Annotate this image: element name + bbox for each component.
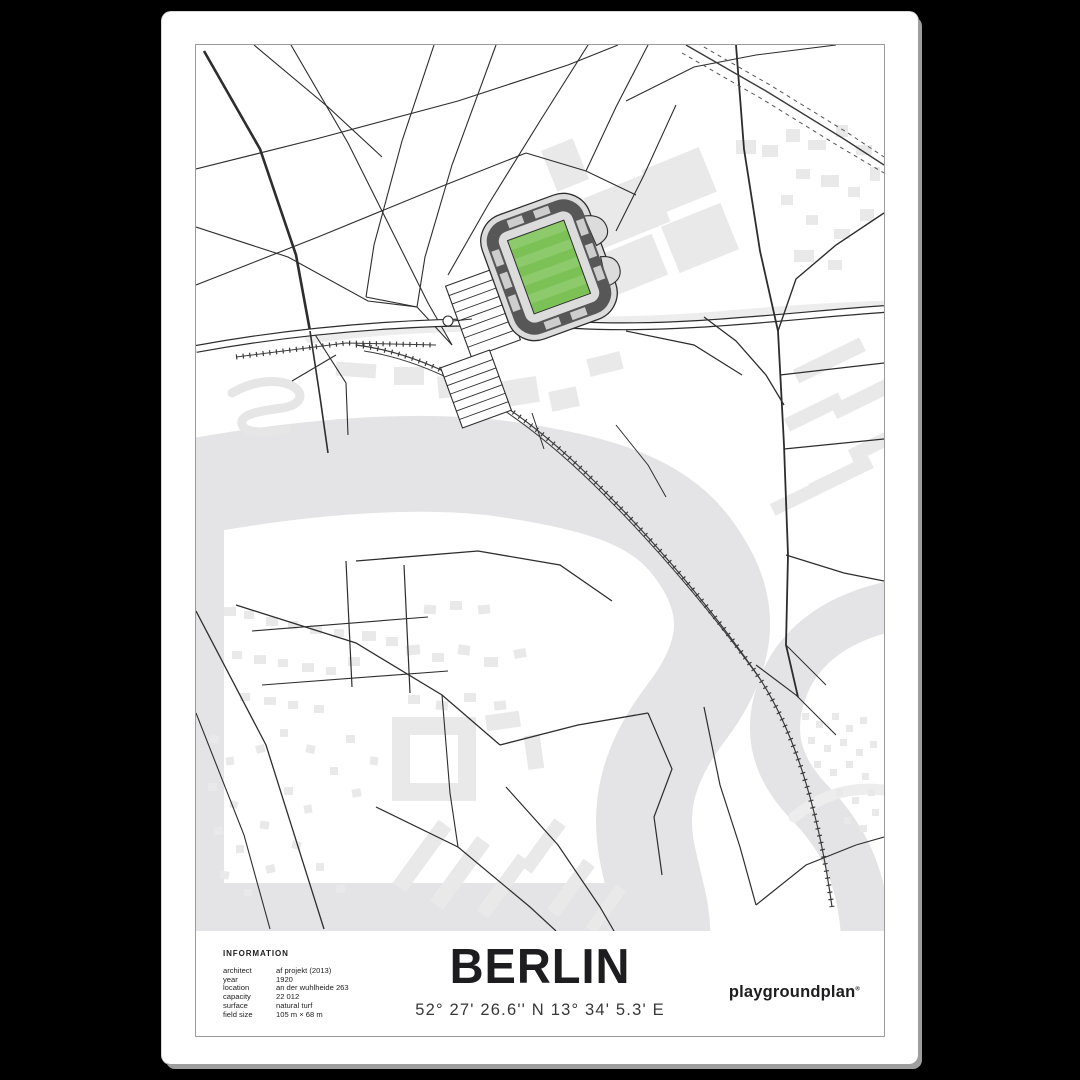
registered-mark: ® — [855, 987, 860, 993]
scene: { "poster": { "title": "BERLIN", "coordi… — [0, 0, 1080, 1080]
poster-title: BERLIN — [367, 939, 713, 995]
poster-sheet: INFORMATION architect af projekt (2013) … — [162, 12, 918, 1064]
title-block: BERLIN 52° 27' 26.6'' N 13° 34' 5.3' E — [360, 939, 720, 1020]
roundabout — [443, 316, 453, 326]
city-map — [196, 45, 884, 931]
caption-area: INFORMATION architect af projekt (2013) … — [196, 931, 884, 1036]
map-svg — [196, 45, 884, 931]
map-frame-border: INFORMATION architect af projekt (2013) … — [195, 44, 885, 1037]
brand-logo: playgroundplan® — [729, 983, 860, 1002]
poster-coordinates: 52° 27' 26.6'' N 13° 34' 5.3' E — [360, 1001, 720, 1020]
